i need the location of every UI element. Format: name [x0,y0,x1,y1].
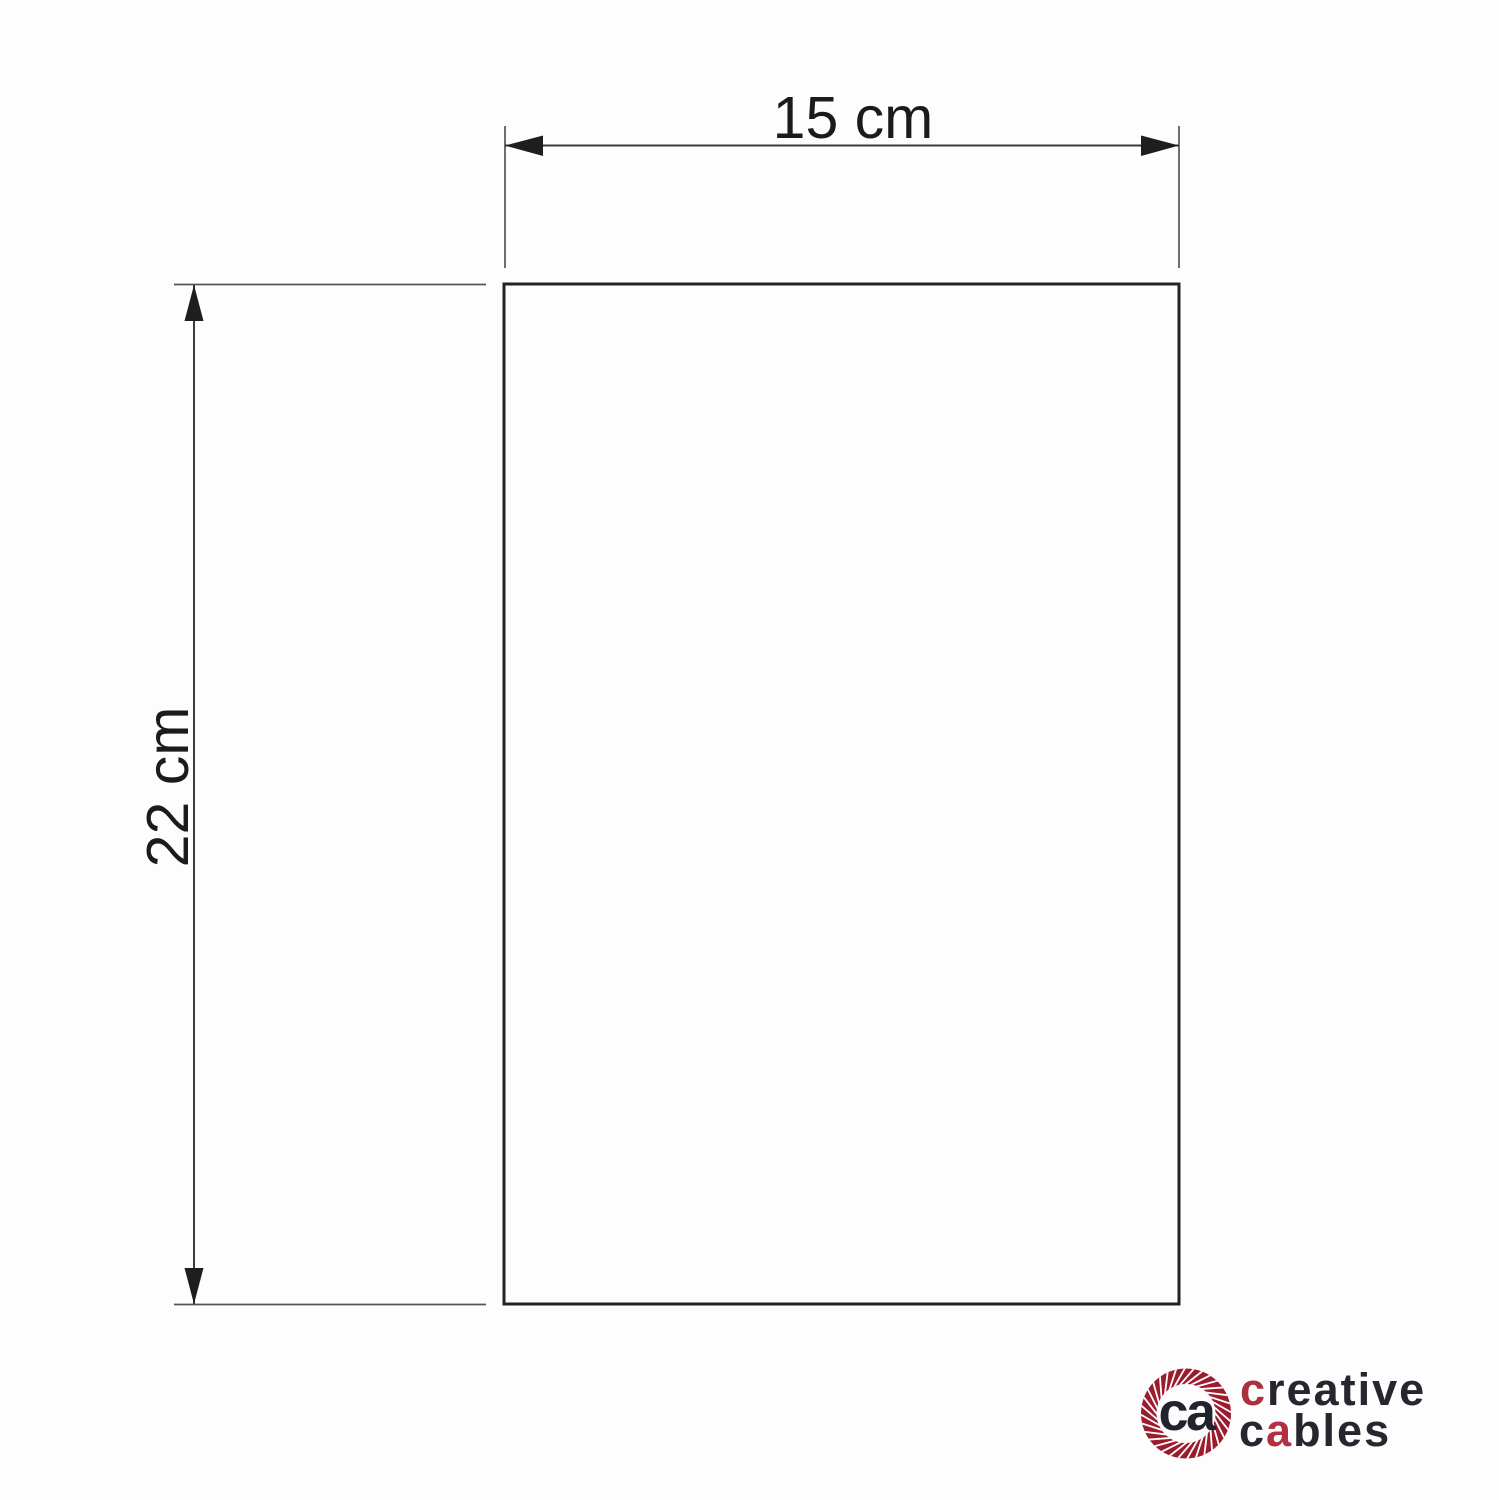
svg-text:ca: ca [1158,1382,1217,1442]
svg-text:cables: cables [1239,1405,1391,1456]
svg-text:15 cm: 15 cm [773,85,934,151]
svg-text:22 cm: 22 cm [135,707,201,868]
